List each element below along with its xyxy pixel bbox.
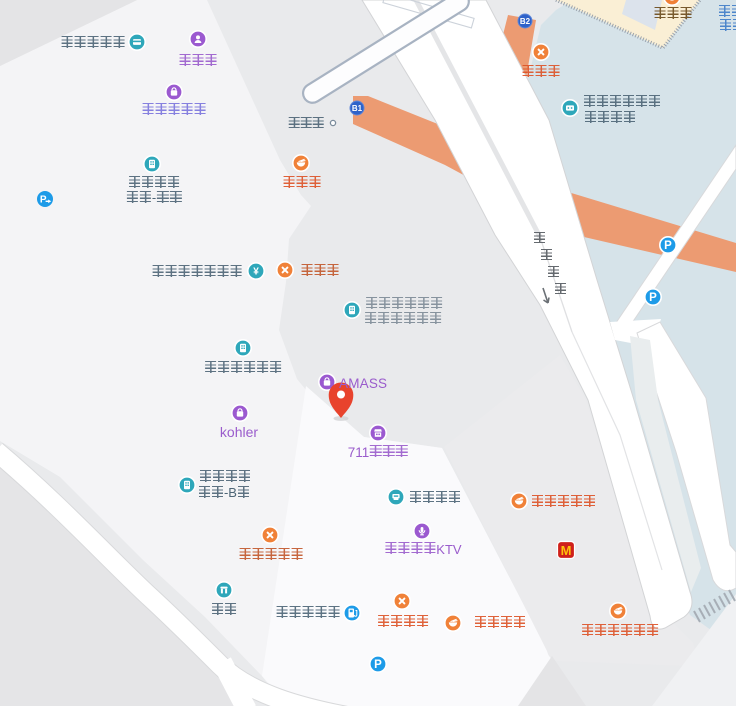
svg-text:B1: B1 [352, 104, 363, 113]
svg-text:M: M [561, 543, 572, 558]
svg-text:B2: B2 [520, 17, 531, 26]
svg-text:P: P [40, 195, 47, 206]
